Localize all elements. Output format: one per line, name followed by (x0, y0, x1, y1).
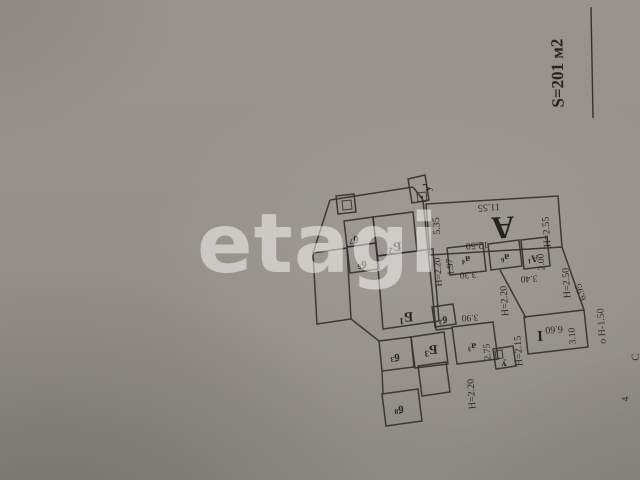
dimension-label: 6.95 (573, 282, 589, 302)
room-label-б8: б8 (394, 403, 404, 417)
room-label-а3: а3 (467, 340, 477, 352)
dimension-label: 1.97 (445, 258, 456, 276)
dimension-label: Н=2.20 (498, 285, 511, 316)
room-label-а4: а4 (461, 253, 471, 265)
dimension-label: 3.30 (459, 269, 476, 280)
room-label-I: I (537, 327, 544, 343)
room-label-у: у (501, 358, 507, 369)
wall-corridor-btm (436, 328, 452, 330)
dimension-label: 3.40 (520, 273, 537, 284)
outside-label: 4 (620, 396, 631, 402)
dimension-label: Н=2.50 (560, 267, 573, 298)
plan-outside-labels: о Н-1.50С4 (595, 308, 640, 402)
dimension-label: Н=2.15 (512, 335, 525, 366)
dimension-label: 2.75 (482, 343, 493, 361)
area-note: S=201 м2 (547, 38, 567, 107)
dimension-label: 3.90 (461, 312, 478, 323)
watermark: etagi (197, 197, 439, 292)
dimension-label: 3.10 (567, 327, 578, 345)
outside-label: С (630, 353, 640, 361)
room-label-Б3: Б3 (424, 342, 438, 359)
room-label-а6: а6 (500, 251, 510, 263)
plan-svg: у1б7б5Б2Б1б3Б3б8б2а3а4а6А1АIу 11.555.351… (0, 0, 640, 480)
dimension-label: 2.00 (536, 253, 547, 271)
room-label-А: А (491, 209, 516, 246)
room-label-Б1: Б1 (398, 308, 413, 325)
room-label-б2: б2 (438, 313, 448, 325)
dimension-label: 12.50 (465, 239, 488, 251)
area-note-underline (591, 7, 593, 118)
floor-plan-photo: у1б7б5Б2Б1б3Б3б8б2а3а4а6А1АIу 11.555.351… (0, 0, 640, 480)
wall-b3-b8 (382, 371, 383, 394)
wall-sw-diag (351, 319, 379, 341)
outside-label: о Н-1.50 (595, 308, 608, 344)
room-label-б3: б3 (390, 351, 400, 365)
dimension-label: 6.60 (545, 323, 563, 335)
dimension-label: Н=2.55 (540, 216, 553, 247)
u-marker-box (495, 350, 503, 359)
dimension-label: 11.55 (478, 201, 501, 213)
dimension-label: Н=2.20 (465, 378, 478, 409)
room-label-у1: у1 (421, 182, 433, 192)
